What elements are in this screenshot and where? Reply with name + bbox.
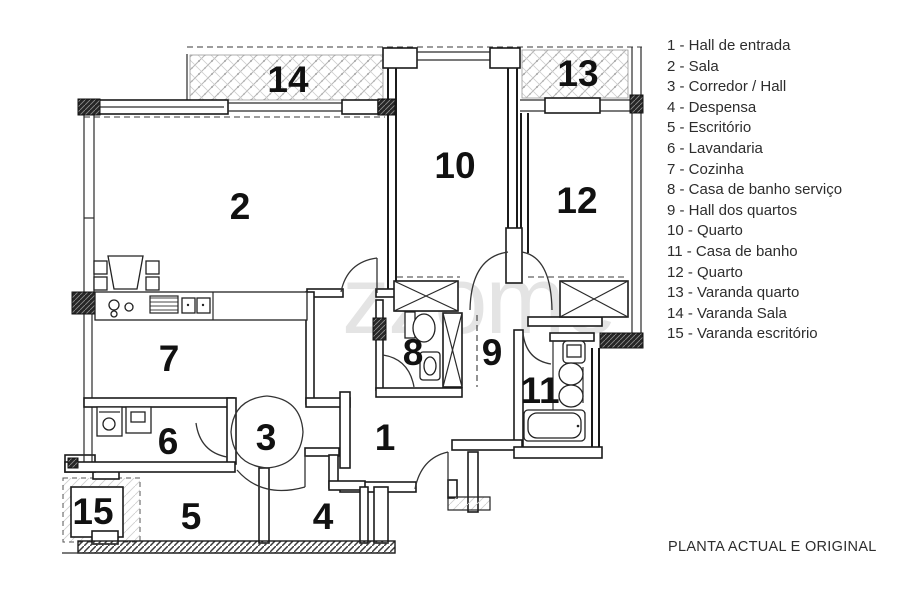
exterior-wall-strip: [62, 541, 395, 553]
room-label-6: 6: [158, 421, 179, 462]
room-label-13: 13: [557, 53, 598, 94]
room-label-7: 7: [159, 338, 180, 379]
legend: 1 - Hall de entrada 2 - Sala 3 - Corredo…: [667, 36, 842, 345]
room-label-11: 11: [520, 370, 559, 411]
room-label-15: 15: [72, 491, 113, 532]
room-label-5: 5: [181, 496, 202, 537]
plan-title: PLANTA ACTUAL E ORIGINAL: [668, 539, 877, 555]
legend-item-8: 8 - Casa de banho serviço: [667, 180, 842, 201]
laundry-appliances: [97, 407, 151, 436]
legend-item-7: 7 - Cozinha: [667, 160, 842, 181]
legend-item-3: 3 - Corredor / Hall: [667, 77, 842, 98]
stove-icon: [150, 296, 178, 313]
dining-table: [94, 256, 159, 290]
legend-item-1: 1 - Hall de entrada: [667, 36, 842, 57]
bidet-icon: [559, 385, 583, 407]
legend-item-13: 13 - Varanda quarto: [667, 283, 842, 304]
room-label-4: 4: [313, 496, 334, 537]
floor-plan-page: zzome: [0, 0, 900, 597]
legend-item-9: 9 - Hall dos quartos: [667, 201, 842, 222]
legend-item-6: 6 - Lavandaria: [667, 139, 842, 160]
room-label-3: 3: [256, 417, 277, 458]
legend-item-2: 2 - Sala: [667, 57, 842, 78]
legend-item-4: 4 - Despensa: [667, 98, 842, 119]
legend-item-11: 11 - Casa de banho: [667, 242, 842, 263]
room-label-8: 8: [403, 332, 424, 373]
legend-item-14: 14 - Varanda Sala: [667, 304, 842, 325]
closet-hall: [443, 313, 462, 387]
room-label-12: 12: [556, 180, 597, 221]
closet-room12: [560, 281, 628, 317]
room-label-10: 10: [434, 145, 475, 186]
toilet-icon: [559, 363, 583, 385]
legend-item-5: 5 - Escritório: [667, 118, 842, 139]
legend-item-15: 15 - Varanda escritório: [667, 324, 842, 345]
kitchen-counter: [95, 292, 307, 320]
room-label-1: 1: [375, 417, 396, 458]
room-label-9: 9: [482, 332, 503, 373]
room-label-14: 14: [267, 59, 309, 100]
closet-room10: [394, 281, 458, 311]
legend-item-10: 10 - Quarto: [667, 221, 842, 242]
room-label-2: 2: [230, 186, 251, 227]
legend-item-12: 12 - Quarto: [667, 263, 842, 284]
